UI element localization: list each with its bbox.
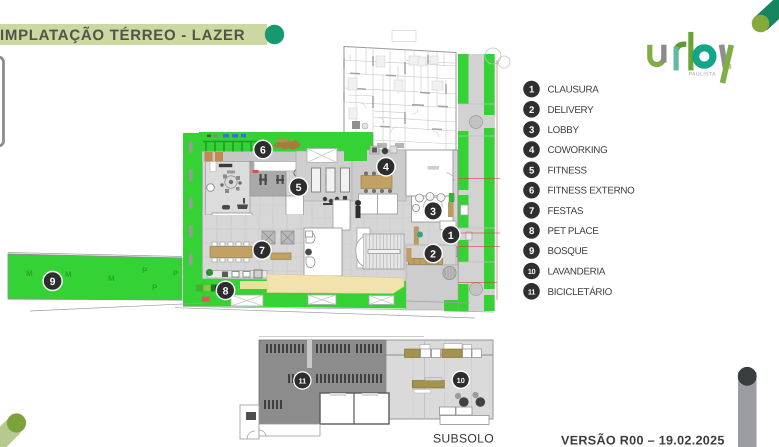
svg-text:SUBSOLO: SUBSOLO [433,432,494,446]
svg-text:11: 11 [298,377,306,386]
svg-text:M: M [26,269,33,278]
svg-text:P: P [152,283,158,292]
svg-text:CLAUSURA: CLAUSURA [548,85,600,96]
svg-text:FESTAS: FESTAS [548,206,584,217]
svg-text:2: 2 [529,105,534,116]
svg-text:COWORKING: COWORKING [548,145,608,156]
svg-text:FITNESS: FITNESS [548,165,588,176]
svg-text:M: M [108,274,115,283]
svg-text:1: 1 [448,230,454,242]
svg-text:P: P [142,266,148,275]
svg-text:BICICLETÁRIO: BICICLETÁRIO [548,286,613,298]
svg-text:2: 2 [430,249,436,261]
svg-text:10: 10 [528,267,536,276]
svg-text:3: 3 [529,125,534,136]
svg-text:7: 7 [259,245,265,257]
svg-text:3: 3 [430,206,436,218]
svg-text:FITNESS EXTERNO: FITNESS EXTERNO [548,186,636,197]
svg-text:DELIVERY: DELIVERY [548,105,595,116]
svg-text:VERSÃO R00 – 19.02.2025: VERSÃO R00 – 19.02.2025 [561,433,725,447]
svg-text:10: 10 [457,376,465,385]
svg-text:BOSQUE: BOSQUE [548,246,589,257]
svg-text:6: 6 [260,145,266,157]
svg-text:PET PLACE: PET PLACE [548,226,600,237]
svg-text:M: M [65,270,72,279]
svg-text:9: 9 [50,276,56,288]
svg-text:4: 4 [383,162,389,174]
svg-text:LAVANDERIA: LAVANDERIA [548,267,606,278]
svg-text:11: 11 [528,287,535,296]
svg-text:P: P [173,269,179,278]
svg-text:5: 5 [296,182,302,194]
svg-text:PAULISTA: PAULISTA [689,72,717,78]
svg-text:9: 9 [529,246,534,257]
svg-text:7: 7 [529,206,534,217]
svg-text:8: 8 [223,285,229,297]
svg-text:IMPLATAÇÃO TÉRREO - LAZER: IMPLATAÇÃO TÉRREO - LAZER [0,26,245,44]
svg-text:6: 6 [529,186,534,197]
svg-text:LOBBY: LOBBY [548,125,580,136]
